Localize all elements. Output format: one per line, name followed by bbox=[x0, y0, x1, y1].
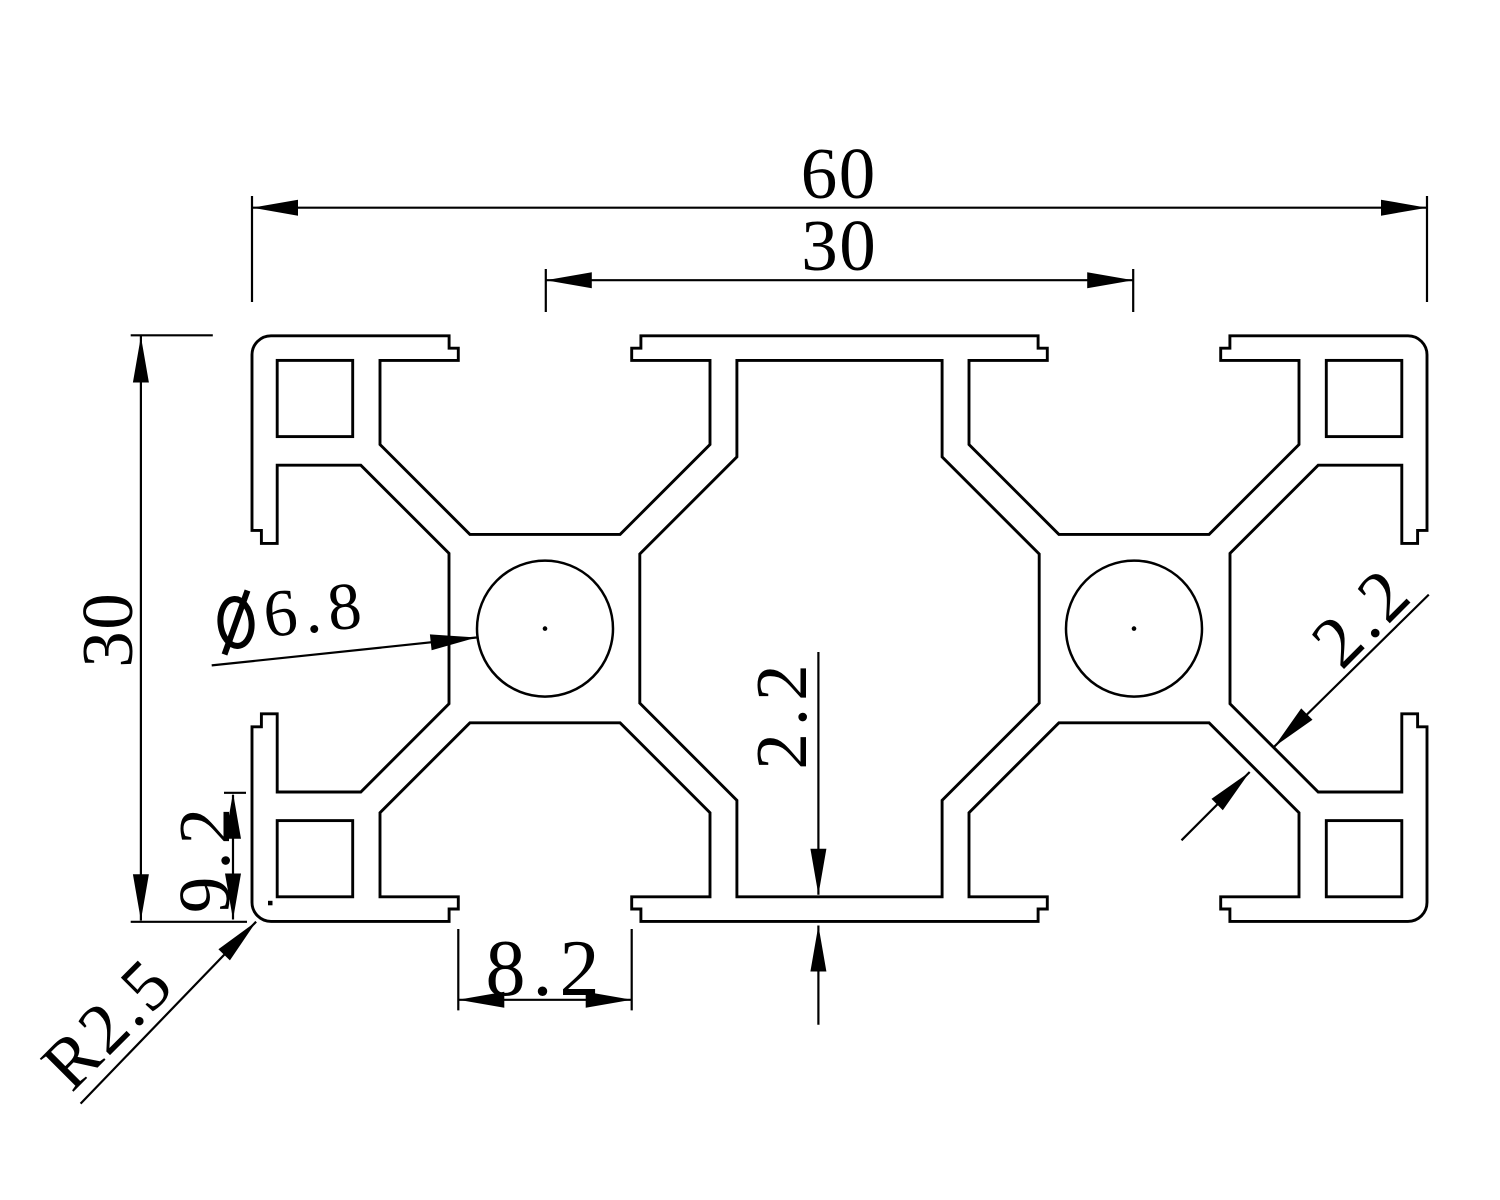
svg-text:6.8: 6.8 bbox=[260, 568, 372, 652]
svg-text:8.2: 8.2 bbox=[486, 925, 607, 1013]
svg-text:60: 60 bbox=[801, 133, 877, 214]
svg-text:30: 30 bbox=[801, 205, 877, 286]
svg-text:2.2: 2.2 bbox=[741, 657, 822, 769]
svg-text:9.2: 9.2 bbox=[164, 801, 245, 913]
svg-text:30: 30 bbox=[67, 592, 148, 668]
